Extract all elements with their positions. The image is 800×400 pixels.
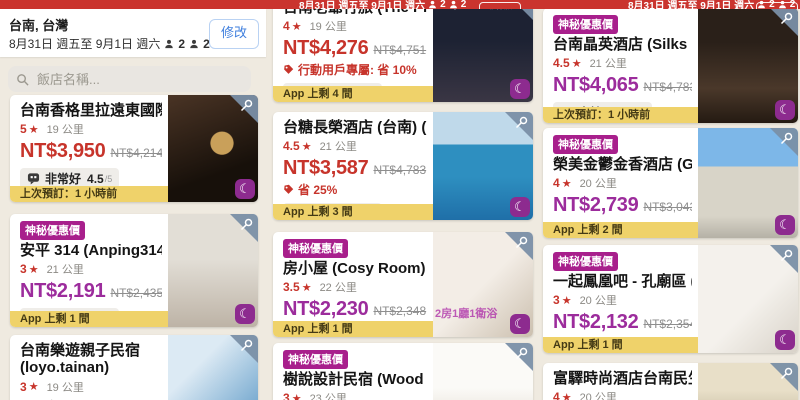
distance: 19 公里 xyxy=(310,18,347,34)
hotel-name-search-input[interactable] xyxy=(35,71,243,88)
person-icon xyxy=(189,39,199,49)
distance: 19 公里 xyxy=(47,379,84,395)
star-icon: ★ xyxy=(29,123,39,136)
secret-price-badge: 神秘優惠價 xyxy=(283,239,348,258)
rating-row: 4 ★ 19 公里 xyxy=(283,18,427,34)
rating-row: 3.5 ★ 22 公里 xyxy=(283,279,427,295)
review-score: 4.5 xyxy=(87,172,104,186)
rating-row: 3 ★ 23 公里 xyxy=(283,390,427,400)
hotel-photo: ☾ xyxy=(433,112,533,220)
guest-count: 2 xyxy=(178,37,185,51)
original-price: NT$4,783 xyxy=(373,163,426,177)
guest-count: 2 xyxy=(440,0,446,9)
original-price: NT$2,354 xyxy=(643,317,692,331)
moon-icon: ☾ xyxy=(510,79,530,99)
hotel-card[interactable]: 富驛時尚酒店台南民生... 4 ★ 20 公里 xyxy=(543,363,798,400)
hotel-photo xyxy=(698,363,798,400)
distance: 20 公里 xyxy=(580,292,617,308)
star-rating: 3 xyxy=(20,262,27,276)
star-icon: ★ xyxy=(29,380,39,393)
hotel-card[interactable]: 神秘優惠價 一起鳳凰吧 - 孔廟區 (17... 3 ★ 20 公里 NT$2,… xyxy=(543,245,798,353)
urgency-banner: 上次預訂：1 小時前 xyxy=(10,186,168,202)
header-date-summary: 8月31日 週五至 9月1日 週六 2 2 xyxy=(299,0,466,9)
results-column: 神秘優惠價 台南晶英酒店 (Silks Pla... 4.5 ★ 21 公里 N… xyxy=(543,0,798,400)
hotel-photo: ☾ xyxy=(698,245,798,353)
star-icon: ★ xyxy=(562,391,572,400)
hotel-photo: ☾ xyxy=(698,128,798,238)
current-price: NT$2,191 xyxy=(20,280,105,303)
star-icon: ★ xyxy=(292,392,302,400)
star-icon: ★ xyxy=(562,177,572,190)
hotel-card-content: 富驛時尚酒店台南民生... 4 ★ 20 公里 xyxy=(543,363,698,400)
secret-price-badge: 神秘優惠價 xyxy=(553,252,618,271)
distance: 21 公里 xyxy=(320,138,357,154)
hotel-search-results-screen: 8月31日 週五至 9月1日 週六 2 2 8月31日 週五至 9月1日 週六 … xyxy=(0,0,800,400)
moon-icon: ☾ xyxy=(510,197,530,217)
star-rating: 3 xyxy=(553,293,560,307)
hotel-photo: ☾ xyxy=(168,214,258,327)
current-price: NT$4,065 xyxy=(553,74,638,97)
pushpin-icon[interactable] xyxy=(770,363,798,391)
hotel-card[interactable]: 台南香格里拉遠東國際... 5 ★ 19 公里 NT$3,950 NT$4,21… xyxy=(10,95,258,202)
urgency-banner: App 上剩 1 間 xyxy=(273,321,433,337)
star-rating: 3.5 xyxy=(283,280,300,294)
rating-row: 4.5 ★ 21 公里 xyxy=(283,138,427,154)
hotel-card[interactable]: 台南樂遊親子民宿 (loyo.tainan) 3 ★ 19 公里 NT$2,60… xyxy=(10,335,258,400)
star-rating: 5 xyxy=(20,122,27,136)
distance: 20 公里 xyxy=(580,175,617,191)
star-rating: 4 xyxy=(553,390,560,400)
rating-row: 4.5 ★ 21 公里 xyxy=(553,55,692,71)
star-icon: ★ xyxy=(562,294,572,307)
dates-guests-row: 8月31日 週五至 9月1日 週六 2 2 xyxy=(9,35,210,52)
hotel-photo: 2房1廳1衛浴 ☾ xyxy=(433,232,533,337)
speech-bubble-icon xyxy=(27,172,40,185)
person-icon xyxy=(449,0,458,9)
star-rating: 4.5 xyxy=(553,56,570,70)
hotel-card[interactable]: 台南老爺行旅 (The Plac... 4 ★ 19 公里 NT$4,276 N… xyxy=(273,0,533,102)
secret-price-badge: 神秘優惠價 xyxy=(20,221,85,240)
original-price: NT$3,043 xyxy=(643,200,692,214)
price-row: NT$2,132 NT$2,354 xyxy=(553,311,692,334)
price-row: NT$3,587 NT$4,783 xyxy=(283,157,427,180)
modify-search-button[interactable]: 修改 xyxy=(209,19,259,49)
hotel-name: 樹說設計民宿 (Wood W... xyxy=(283,371,427,388)
hotel-name: 台南香格里拉遠東國際... xyxy=(20,102,162,119)
hotel-name-search[interactable] xyxy=(8,66,251,92)
search-summary-panel: 台南, 台灣 8月31日 週五至 9月1日 週六 2 2 修改 xyxy=(0,9,266,57)
urgency-banner: 上次預訂：1 小時前 xyxy=(543,107,698,123)
header-dates: 8月31日 週五至 9月1日 週六 xyxy=(628,0,754,9)
moon-icon: ☾ xyxy=(775,330,795,350)
price-row: NT$2,739 NT$3,043 xyxy=(553,194,692,217)
hotel-card[interactable]: 台糖長榮酒店 (台南) (Ev... 4.5 ★ 21 公里 NT$3,587 … xyxy=(273,112,533,220)
rating-row: 5 ★ 19 公里 xyxy=(20,121,162,137)
promo-row: 省 25% xyxy=(283,181,427,198)
distance: 22 公里 xyxy=(320,279,357,295)
price-row: NT$2,191 NT$2,435 xyxy=(20,280,162,303)
star-icon: ★ xyxy=(292,20,302,33)
rating-row: 3 ★ 20 公里 xyxy=(553,292,692,308)
price-row: NT$4,276 NT$4,751 xyxy=(283,37,427,60)
star-icon: ★ xyxy=(302,140,312,153)
hotel-name: 安平 314 (Anping314) xyxy=(20,242,162,259)
search-icon xyxy=(16,73,29,86)
rating-row: 3 ★ 21 公里 xyxy=(20,261,162,277)
hotel-photo: ☾ xyxy=(698,8,798,123)
urgency-banner: App 上剩 3 間 xyxy=(273,204,433,220)
hotel-photo xyxy=(168,335,258,400)
secret-price-badge: 神秘優惠價 xyxy=(553,135,618,154)
star-rating: 4 xyxy=(283,19,290,33)
current-price: NT$3,950 xyxy=(20,140,105,163)
current-price: NT$3,587 xyxy=(283,157,368,180)
pushpin-icon[interactable] xyxy=(505,232,533,260)
current-price: NT$2,739 xyxy=(553,194,638,217)
hotel-name: 富驛時尚酒店台南民生... xyxy=(553,370,692,387)
hotel-card[interactable]: 神秘優惠價 榮美金鬱金香酒店 (Gol... 4 ★ 20 公里 NT$2,73… xyxy=(543,128,798,238)
hotel-card[interactable]: 神秘優惠價 安平 314 (Anping314) 3 ★ 21 公里 NT$2,… xyxy=(10,214,258,327)
star-rating: 4.5 xyxy=(283,139,300,153)
destination-label: 台南, 台灣 xyxy=(9,15,68,34)
modify-button-cropped[interactable] xyxy=(756,2,798,9)
current-price: NT$2,132 xyxy=(553,311,638,334)
person-icon xyxy=(164,39,174,49)
results-column: 台南香格里拉遠東國際... 5 ★ 19 公里 NT$3,950 NT$4,21… xyxy=(10,0,258,400)
star-rating: 3 xyxy=(20,380,27,394)
original-price: NT$4,751 xyxy=(373,43,426,57)
distance: 21 公里 xyxy=(47,261,84,277)
promo-label: 省 25% xyxy=(298,181,337,198)
pushpin-icon[interactable] xyxy=(230,214,258,242)
score-suffix: /5 xyxy=(105,174,113,184)
hotel-photo: ☾ xyxy=(168,95,258,202)
original-price: NT$2,435 xyxy=(110,286,162,300)
urgency-banner: App 上剩 4 間 xyxy=(273,86,433,102)
hotel-name: 一起鳳凰吧 - 孔廟區 (17... xyxy=(553,273,692,290)
urgency-banner: App 上剩 1 間 xyxy=(10,311,168,327)
pushpin-icon[interactable] xyxy=(770,128,798,156)
tag-icon xyxy=(283,184,294,195)
current-price: NT$2,230 xyxy=(283,298,368,321)
pushpin-icon[interactable] xyxy=(230,335,258,363)
price-row: NT$2,230 NT$2,348 xyxy=(283,298,427,321)
pushpin-icon[interactable] xyxy=(505,343,533,371)
modify-button-cropped[interactable] xyxy=(479,2,521,9)
promo-row: 行動用戶專屬: 省 10% xyxy=(283,61,427,78)
moon-icon: ☾ xyxy=(775,100,795,120)
hotel-name-line2: (loyo.tainan) xyxy=(20,359,162,376)
hotel-name: 房小屋 (Cosy Room) xyxy=(283,260,427,277)
pushpin-icon[interactable] xyxy=(770,245,798,273)
hotel-name: 台糖長榮酒店 (台南) (Ev... xyxy=(283,119,427,136)
guest-count: 2 xyxy=(461,0,467,9)
secret-price-badge: 神秘優惠價 xyxy=(283,350,348,369)
hotel-name: 台南晶英酒店 (Silks Pla... xyxy=(553,36,692,53)
rating-row: 3 ★ 19 公里 xyxy=(20,379,162,395)
moon-icon: ☾ xyxy=(510,314,530,334)
star-icon: ★ xyxy=(302,281,312,294)
current-price: NT$4,276 xyxy=(283,37,368,60)
promo-label: 行動用戶專屬: 省 10% xyxy=(298,61,417,78)
moon-icon: ☾ xyxy=(235,304,255,324)
pushpin-icon[interactable] xyxy=(505,112,533,140)
tag-icon xyxy=(283,64,294,75)
star-icon: ★ xyxy=(29,263,39,276)
pushpin-icon[interactable] xyxy=(770,8,798,36)
hotel-card[interactable]: 神秘優惠價 房小屋 (Cosy Room) 3.5 ★ 22 公里 NT$2,2… xyxy=(273,232,533,337)
distance: 23 公里 xyxy=(310,390,347,400)
app-header: 8月31日 週五至 9月1日 週六 2 2 8月31日 週五至 9月1日 週六 … xyxy=(0,0,800,9)
star-rating: 3 xyxy=(283,391,290,400)
pushpin-icon[interactable] xyxy=(230,95,258,123)
results-column: 台南老爺行旅 (The Plac... 4 ★ 19 公里 NT$4,276 N… xyxy=(273,0,533,400)
price-row: NT$4,065 NT$4,783 xyxy=(553,74,692,97)
review-label: 非常好 xyxy=(45,170,81,187)
hotel-name: 榮美金鬱金香酒店 (Gol... xyxy=(553,156,692,173)
urgency-banner: App 上剩 1 間 xyxy=(543,337,698,353)
secret-price-badge: 神秘優惠價 xyxy=(553,15,618,34)
moon-icon: ☾ xyxy=(775,215,795,235)
hotel-name: 台南樂遊親子民宿 xyxy=(20,342,162,359)
header-dates: 8月31日 週五至 9月1日 週六 xyxy=(299,0,425,9)
star-icon: ★ xyxy=(572,57,582,70)
hotel-card-content: 神秘優惠價 樹說設計民宿 (Wood W... 3 ★ 23 公里 xyxy=(273,343,433,400)
distance: 19 公里 xyxy=(47,121,84,137)
hotel-photo xyxy=(433,343,533,400)
star-rating: 4 xyxy=(553,176,560,190)
distance: 21 公里 xyxy=(590,55,627,71)
hotel-photo: the place 老爺行旅 ☾ xyxy=(433,0,533,102)
person-icon xyxy=(428,0,437,9)
rating-row: 4 ★ 20 公里 xyxy=(553,175,692,191)
hotel-card[interactable]: 神秘優惠價 台南晶英酒店 (Silks Pla... 4.5 ★ 21 公里 N… xyxy=(543,8,798,123)
hotel-card-content: 神秘優惠價 台南晶英酒店 (Silks Pla... 4.5 ★ 21 公里 N… xyxy=(543,8,698,123)
dates-label: 8月31日 週五至 9月1日 週六 xyxy=(9,35,160,52)
distance: 20 公里 xyxy=(580,389,617,400)
urgency-banner: App 上剩 2 間 xyxy=(543,222,698,238)
rating-row: 4 ★ 20 公里 xyxy=(553,389,692,400)
original-price: NT$4,783 xyxy=(643,80,692,94)
original-price: NT$4,214 xyxy=(110,146,162,160)
hotel-card-content: 台南樂遊親子民宿 (loyo.tainan) 3 ★ 19 公里 NT$2,60… xyxy=(10,335,168,400)
moon-icon: ☾ xyxy=(235,179,255,199)
price-row: NT$3,950 NT$4,214 xyxy=(20,140,162,163)
original-price: NT$2,348 xyxy=(373,304,426,318)
hotel-card[interactable]: 神秘優惠價 樹說設計民宿 (Wood W... 3 ★ 23 公里 xyxy=(273,343,533,400)
